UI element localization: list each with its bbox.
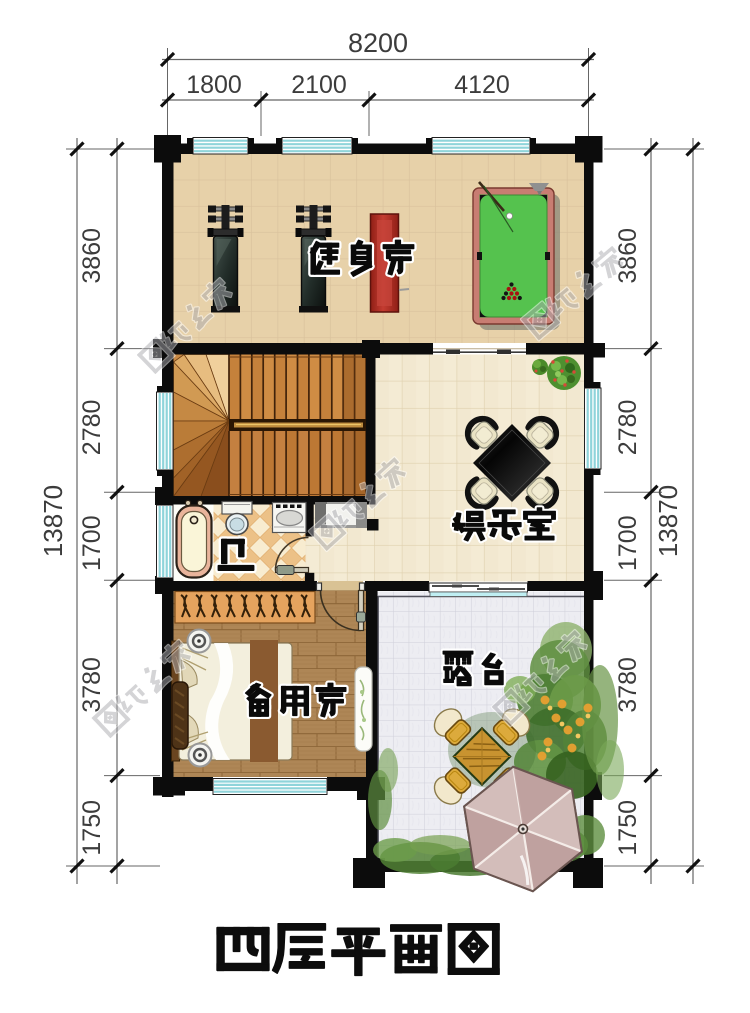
svg-text:1750: 1750	[614, 800, 642, 856]
svg-text:1750: 1750	[78, 800, 106, 856]
svg-text:1700: 1700	[78, 515, 106, 571]
svg-text:2780: 2780	[614, 400, 642, 456]
svg-text:1700: 1700	[614, 515, 642, 571]
svg-text:3780: 3780	[78, 657, 106, 713]
svg-text:13870: 13870	[38, 485, 68, 557]
svg-text:3860: 3860	[78, 228, 106, 284]
svg-text:2780: 2780	[78, 400, 106, 456]
svg-text:4120: 4120	[454, 71, 510, 99]
svg-text:8200: 8200	[348, 28, 408, 58]
svg-text:3780: 3780	[614, 657, 642, 713]
svg-text:2100: 2100	[291, 71, 347, 99]
svg-text:13870: 13870	[653, 485, 683, 557]
svg-text:1800: 1800	[186, 71, 242, 99]
